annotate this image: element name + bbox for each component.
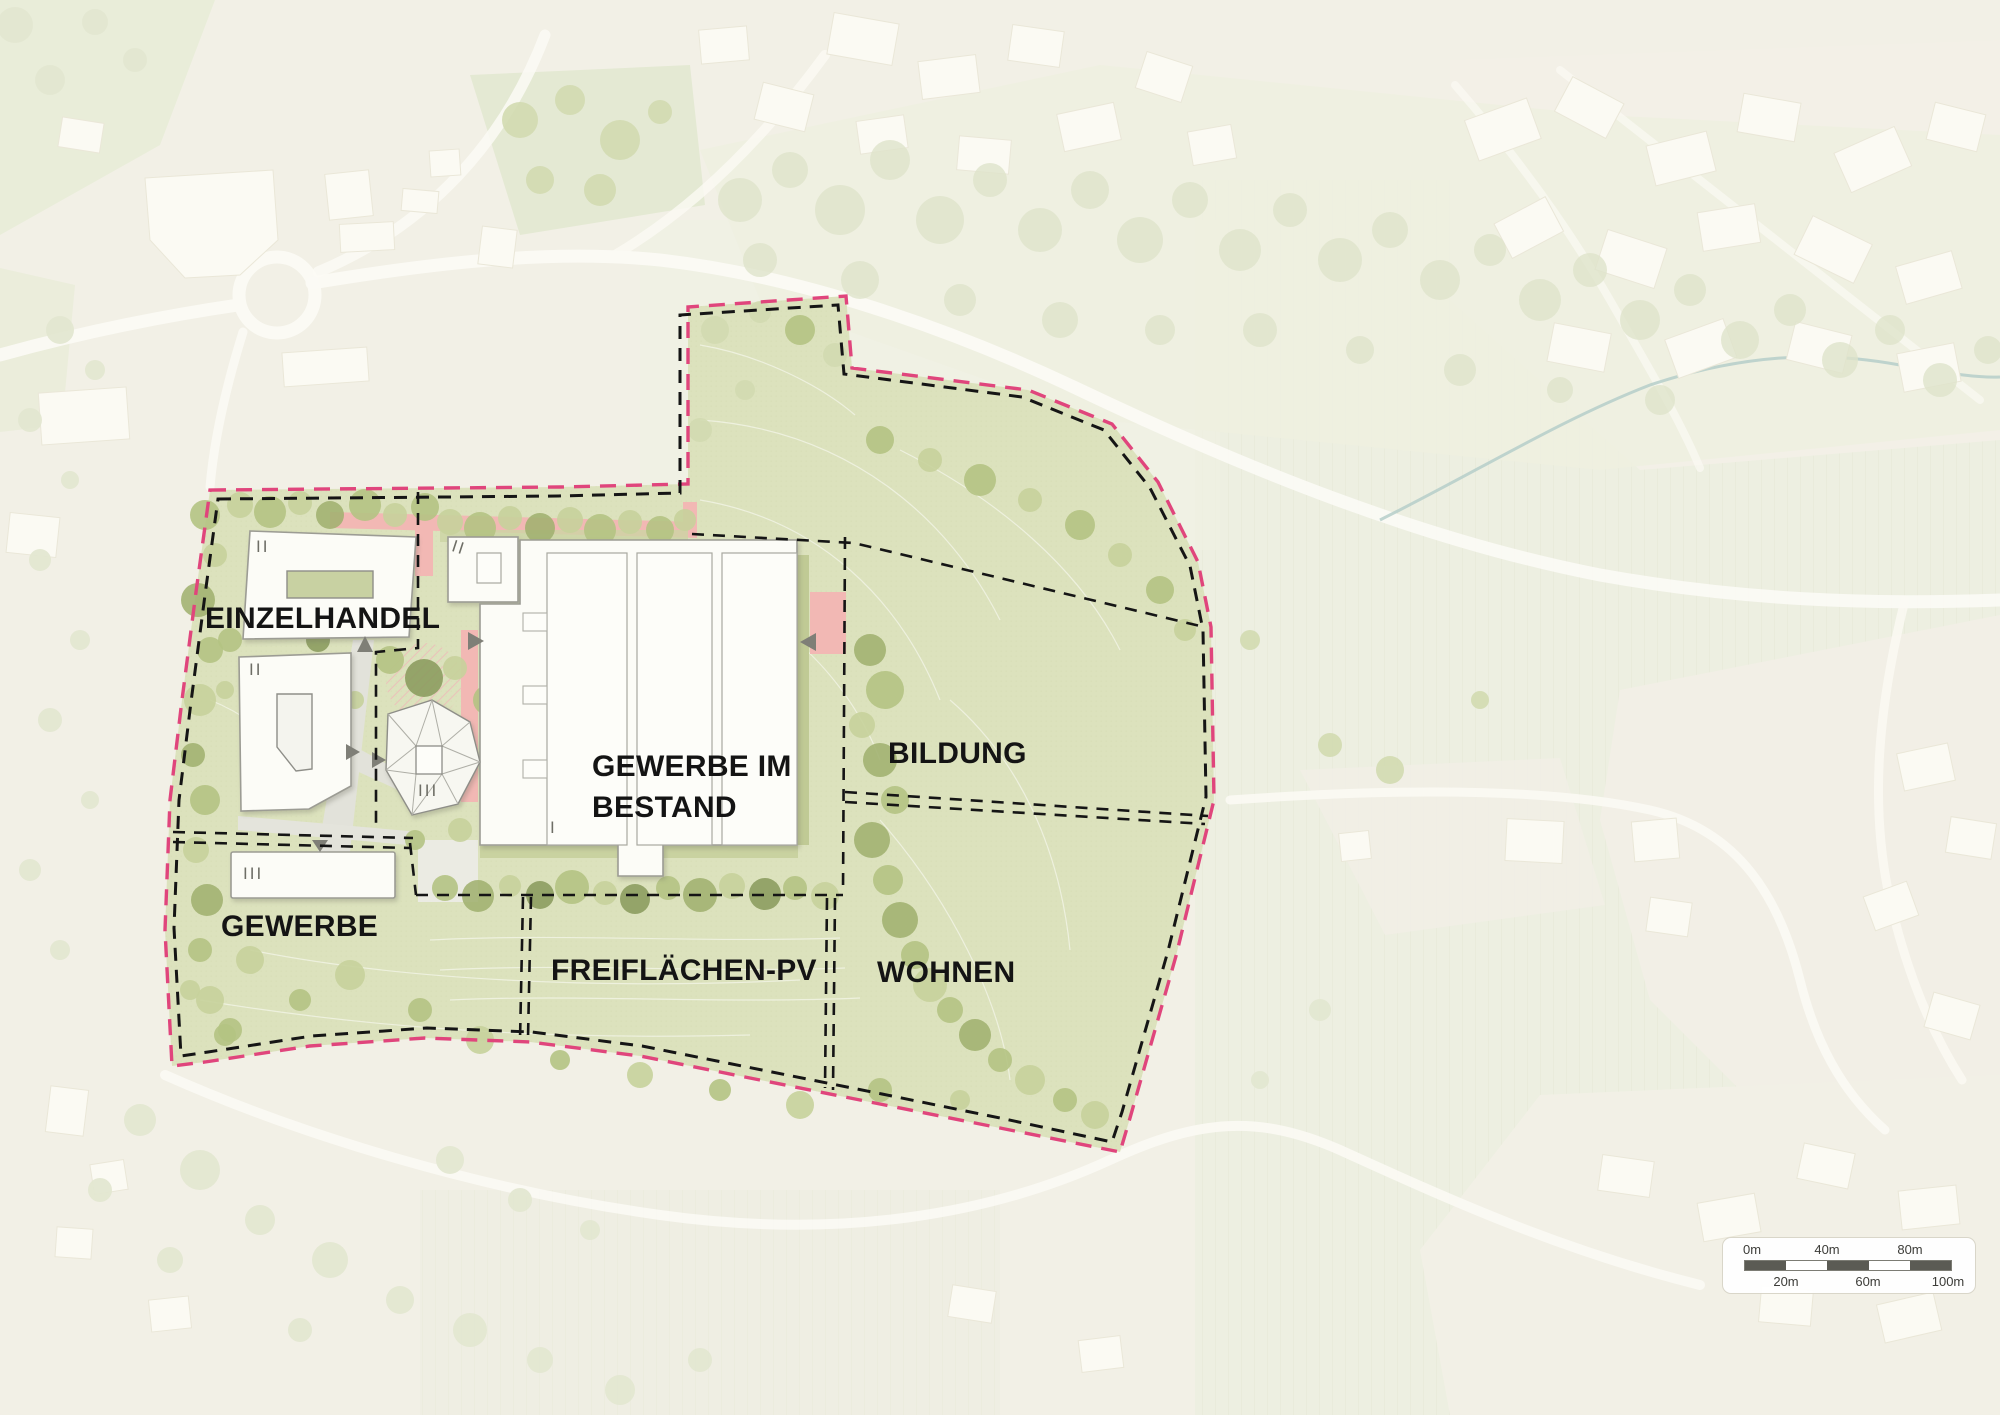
zone-label-line-1: GEWERBE IM (592, 746, 792, 787)
storey-mark-pavilion: III (418, 781, 438, 801)
scale-label-60m: 60m (1855, 1274, 1880, 1289)
storey-mark-commercial: III (243, 864, 263, 884)
scale-segment (1869, 1261, 1910, 1270)
scale-segment (1745, 1261, 1786, 1270)
scale-bar: 0m 40m 80m 20m 60m 100m (1722, 1237, 1976, 1294)
storey-mark-retail-1: II (256, 537, 269, 557)
zone-label-line-2: BESTAND (592, 787, 792, 828)
zone-label-wohnen: WOHNEN (877, 952, 1015, 993)
zone-label-freiflaechen-pv: FREIFLÄCHEN-PV (551, 950, 817, 991)
scale-segment (1827, 1261, 1868, 1270)
scale-label-100m: 100m (1932, 1274, 1965, 1289)
scale-segment (1910, 1261, 1951, 1270)
scale-label-80m: 80m (1897, 1242, 1922, 1257)
zone-label-gewerbe: GEWERBE (221, 906, 378, 947)
scale-label-40m: 40m (1814, 1242, 1839, 1257)
scale-bar-segments (1744, 1260, 1952, 1271)
storey-mark-retail-2: II (249, 660, 262, 680)
scale-label-0m: 0m (1743, 1242, 1761, 1257)
site-plan-page: EINZELHANDEL GEWERBE IM BESTAND BILDUNG … (0, 0, 2000, 1415)
zone-label-einzelhandel: EINZELHANDEL (205, 598, 440, 639)
scale-bar-inner: 0m 40m 80m 20m 60m 100m (1744, 1242, 1952, 1289)
scale-label-20m: 20m (1773, 1274, 1798, 1289)
site-plan-map (0, 0, 2000, 1415)
zone-label-gewerbe-im-bestand: GEWERBE IM BESTAND (592, 746, 792, 829)
scale-segment (1786, 1261, 1827, 1270)
storey-mark-industrial-hall: I (550, 818, 557, 838)
zone-label-bildung: BILDUNG (888, 733, 1027, 774)
